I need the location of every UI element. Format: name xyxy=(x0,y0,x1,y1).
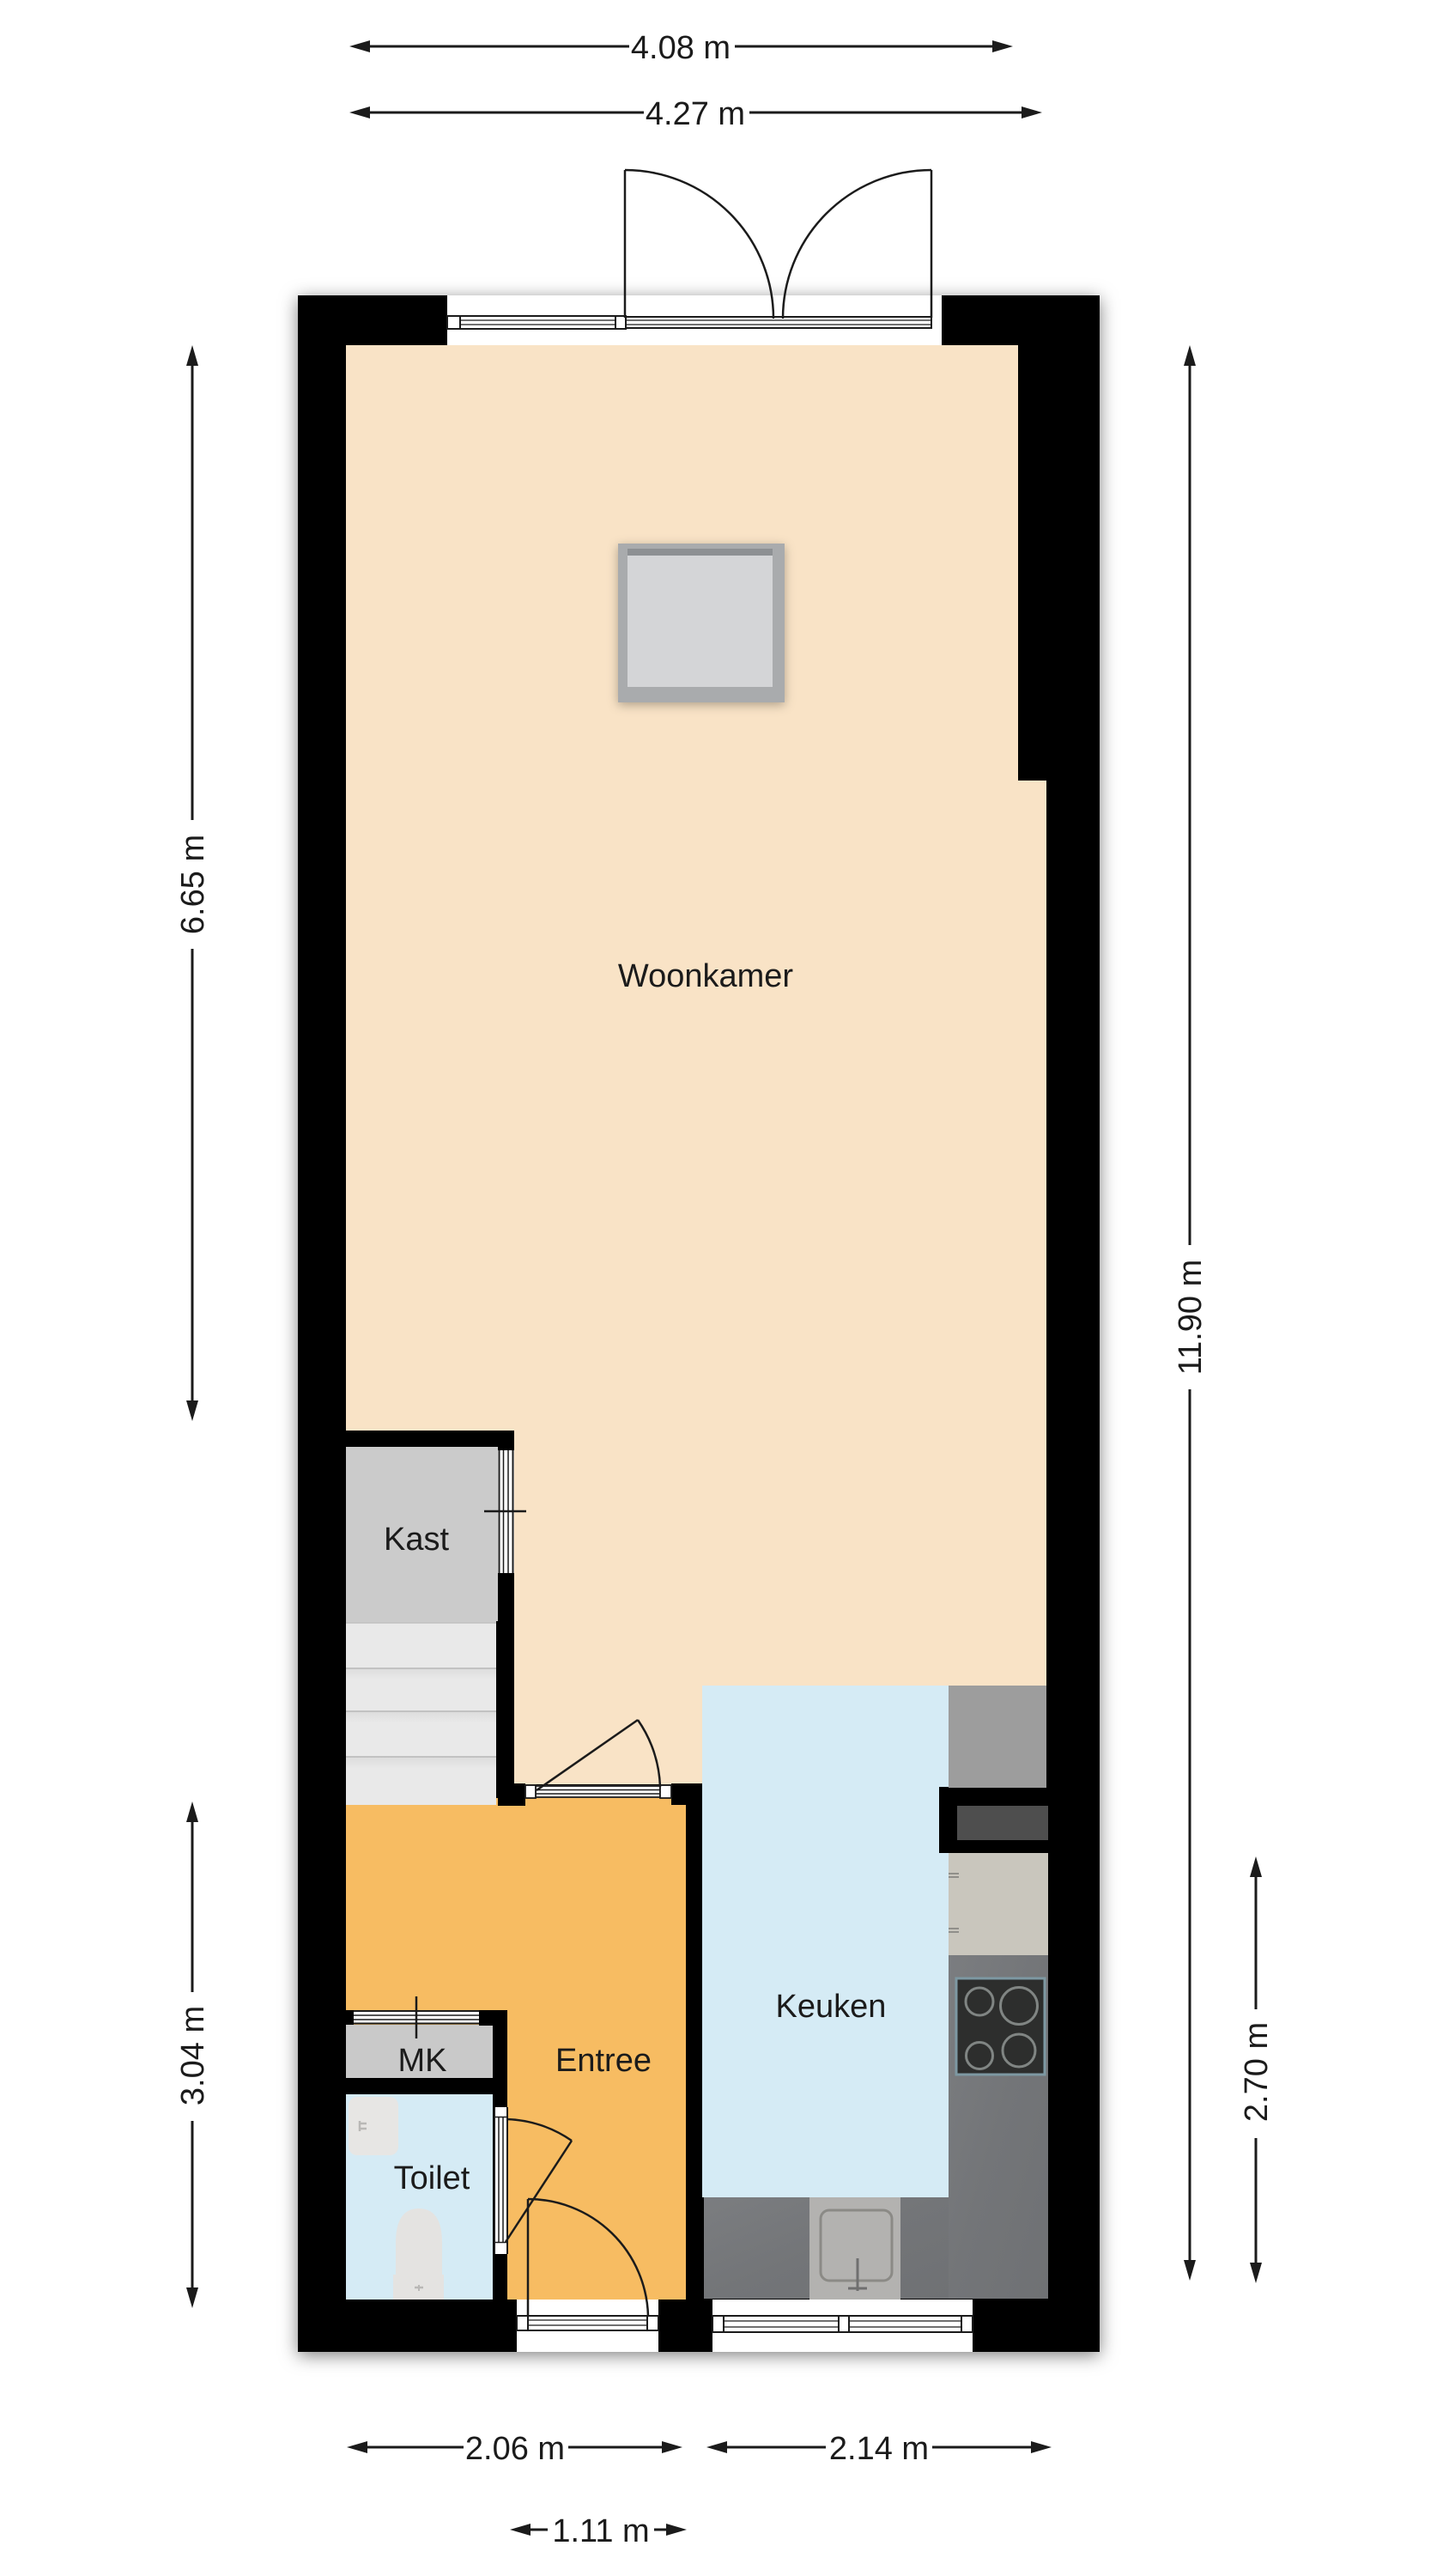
svg-text:Entree: Entree xyxy=(555,2043,652,2079)
svg-text:4.27 m: 4.27 m xyxy=(646,96,745,132)
svg-text:1.11 m: 1.11 m xyxy=(552,2513,649,2549)
svg-text:6.65 m: 6.65 m xyxy=(175,835,211,934)
svg-text:Keuken: Keuken xyxy=(776,1989,887,2025)
svg-text:Woonkamer: Woonkamer xyxy=(618,958,794,994)
svg-text:11.90 m: 11.90 m xyxy=(1173,1260,1209,1375)
svg-text:2.14 m: 2.14 m xyxy=(829,2431,929,2467)
svg-text:Kast: Kast xyxy=(384,1522,449,1558)
svg-text:Toilet: Toilet xyxy=(394,2160,470,2196)
svg-text:4.08 m: 4.08 m xyxy=(631,30,731,66)
svg-text:3.04 m: 3.04 m xyxy=(175,2006,211,2105)
svg-text:2.70 m: 2.70 m xyxy=(1239,2022,1275,2122)
svg-text:2.06 m: 2.06 m xyxy=(465,2431,565,2467)
svg-text:MK: MK xyxy=(398,2043,447,2079)
